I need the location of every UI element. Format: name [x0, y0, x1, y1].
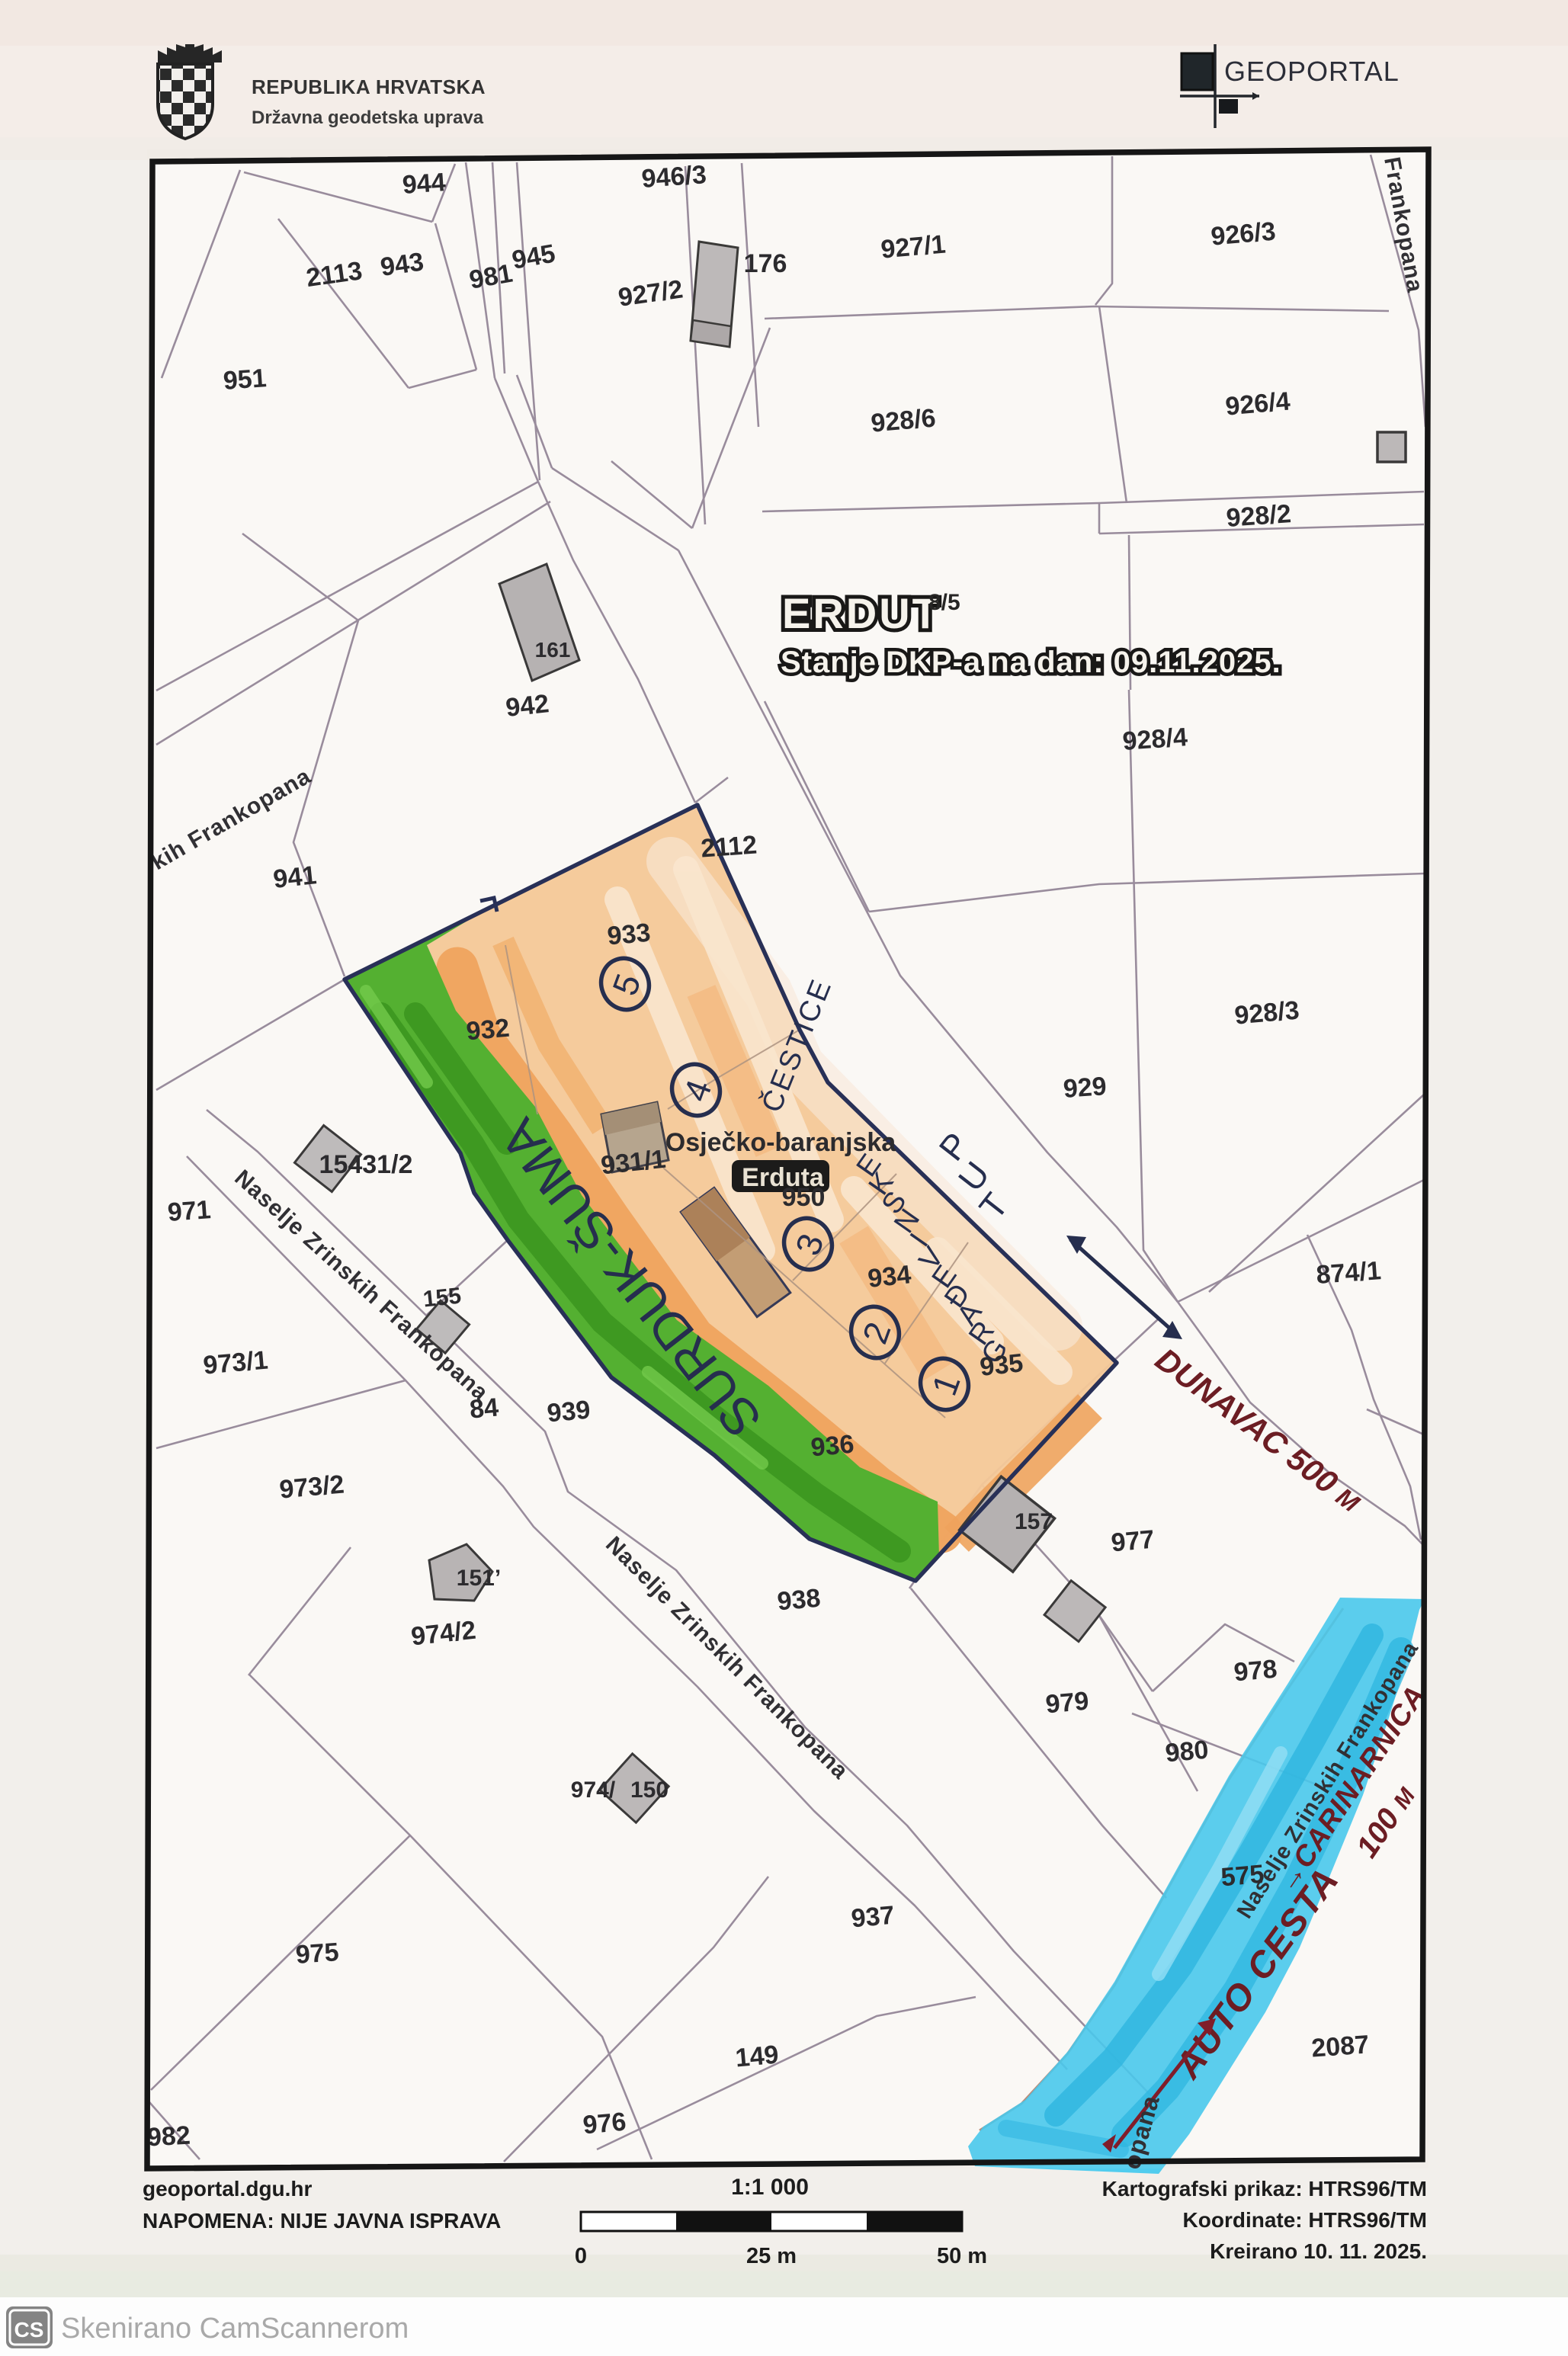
svg-text:Skenirano CamScannerom: Skenirano CamScannerom	[61, 2313, 409, 2345]
svg-text:25 m: 25 m	[746, 2244, 797, 2268]
svg-text:1:1 000: 1:1 000	[731, 2175, 809, 2200]
svg-text:Državna geodetska uprava: Državna geodetska uprava	[252, 107, 484, 128]
svg-text:Kartografski prikaz: HTRS96/TM: Kartografski prikaz: HTRS96/TM	[1102, 2177, 1427, 2201]
svg-text:GEOPORTAL: GEOPORTAL	[1224, 56, 1400, 87]
svg-text:Koordinate: HTRS96/TM: Koordinate: HTRS96/TM	[1183, 2208, 1427, 2232]
svg-text:Kreirano 10. 11. 2025.: Kreirano 10. 11. 2025.	[1210, 2239, 1427, 2263]
svg-text:geoportal.dgu.hr: geoportal.dgu.hr	[143, 2177, 313, 2201]
svg-text:CS: CS	[14, 2318, 44, 2342]
svg-text:0: 0	[575, 2244, 587, 2268]
svg-text:REPUBLIKA HRVATSKA: REPUBLIKA HRVATSKA	[252, 75, 486, 98]
svg-text:NAPOMENA: NIJE JAVNA ISPRAVA: NAPOMENA: NIJE JAVNA ISPRAVA	[143, 2209, 501, 2233]
svg-text:50 m: 50 m	[937, 2244, 987, 2268]
